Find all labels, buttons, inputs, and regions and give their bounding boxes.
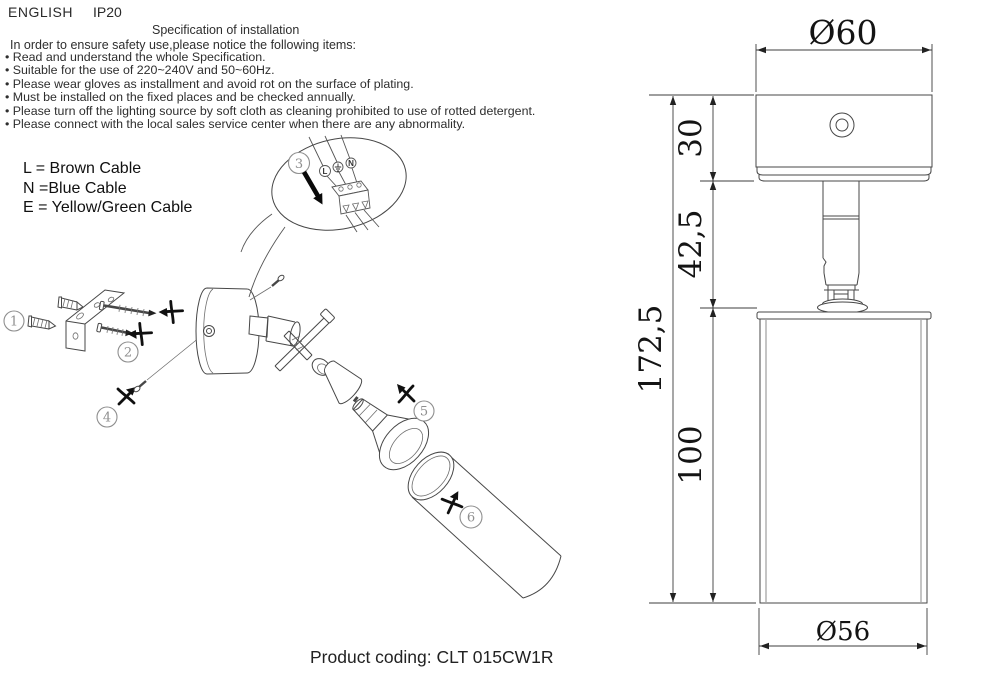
svg-text:Ø60: Ø60 (808, 13, 877, 52)
svg-text:4: 4 (103, 411, 111, 426)
terminal-label-live: L (320, 166, 331, 177)
dimension-canopy-diameter: Ø60 (756, 13, 932, 92)
fixture-canopy-outline (756, 95, 932, 181)
exploded-view: 1 2 4 5 6 (4, 274, 561, 598)
product-coding: Product coding: CLT 015CW1R (310, 647, 554, 668)
mounting-bracket (66, 290, 124, 351)
screwdriver-turn-icon (118, 387, 136, 404)
fixture-stem-outline (818, 181, 868, 313)
svg-text:6: 6 (467, 511, 475, 526)
step-1-badge: 1 (4, 311, 24, 331)
step-6-badge: 6 (460, 506, 482, 528)
dimension-canopy-height: 30 (673, 118, 709, 157)
dimension-stem-height: 42,5 (673, 209, 709, 278)
terminal-label-neutral: N (346, 158, 356, 168)
screwdriver-turn-icon (441, 491, 464, 513)
step-2-badge: 2 (118, 342, 138, 362)
svg-text:3: 3 (295, 157, 303, 172)
step-4-badge: 4 (97, 407, 117, 427)
screwdriver-turn-icon (397, 384, 414, 402)
svg-text:5: 5 (420, 405, 428, 420)
step-5-badge: 5 (414, 401, 434, 421)
svg-text:Ø56: Ø56 (816, 617, 870, 647)
mounting-screw-icon (97, 301, 157, 336)
lamp-socket (309, 355, 362, 403)
dimension-body-diameter: Ø56 (759, 608, 927, 655)
wiring-callout: L N 3 (241, 126, 415, 297)
screwdriver-turn-icon (159, 299, 184, 324)
earth-ground-icon (333, 162, 343, 172)
svg-text:N: N (348, 159, 354, 168)
dimension-total-height: 172,5 30 42,5 100 (633, 95, 757, 603)
technical-drawing: 1 2 4 5 6 L (0, 0, 1000, 690)
svg-text:1: 1 (10, 315, 18, 330)
svg-text:L: L (323, 167, 328, 176)
fixture-body-outline (757, 312, 931, 603)
installation-sheet: { "header": { "language": "ENGLISH", "ip… (0, 0, 1000, 690)
dimension-drawing: Ø60 172,5 30 42,5 100 (633, 13, 932, 655)
svg-text:2: 2 (124, 346, 132, 361)
svg-text:172,5: 172,5 (633, 305, 669, 394)
step-3-badge: 3 (289, 153, 310, 174)
dimension-body-height: 100 (673, 425, 709, 484)
